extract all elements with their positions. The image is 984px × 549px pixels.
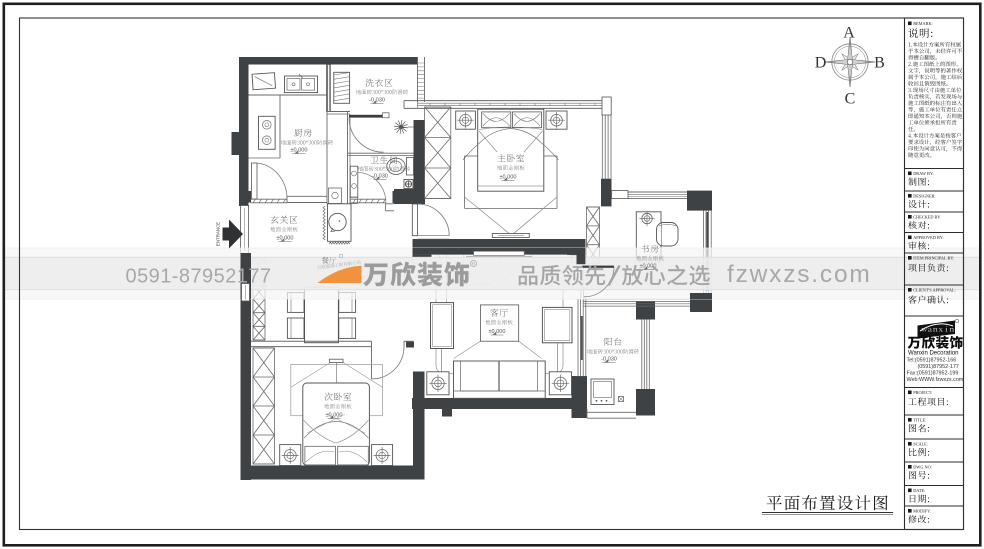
svg-text:±0.000: ±0.000 (290, 148, 307, 154)
svg-text:REMARK:: REMARK: (913, 21, 933, 26)
svg-text:ITEM PRINCIPAL BY:: ITEM PRINCIPAL BY: (913, 256, 954, 261)
svg-text:DRAW BY:: DRAW BY: (913, 171, 934, 176)
svg-text:MODIFY:: MODIFY: (913, 509, 931, 514)
svg-text:DWG NO:: DWG NO: (913, 465, 932, 470)
svg-text:(0591)87952-177: (0591)87952-177 (918, 364, 959, 370)
svg-text:DATE:: DATE: (913, 488, 925, 493)
svg-text:±0.000: ±0.000 (325, 413, 342, 419)
svg-text:PROJECT:: PROJECT: (913, 390, 932, 395)
svg-text:Fax:(0591)87952-199: Fax:(0591)87952-199 (907, 371, 959, 377)
svg-text:APPROVED BY:: APPROVED BY: (913, 235, 944, 240)
svg-text:Wanxin Decoration: Wanxin Decoration (908, 351, 958, 357)
svg-text:CLIENT'S APPROVAL:: CLIENT'S APPROVAL: (913, 288, 956, 293)
svg-text:-0.030: -0.030 (601, 357, 617, 363)
svg-text:A: A (843, 25, 855, 42)
svg-text:-0.030: -0.030 (369, 98, 385, 104)
svg-text:C: C (845, 91, 856, 108)
svg-text:ENTRANCE: ENTRANCE (216, 222, 221, 246)
svg-text:-0.030: -0.030 (372, 174, 388, 180)
svg-text:±0.000: ±0.000 (276, 236, 293, 242)
svg-text:±0.000: ±0.000 (499, 175, 516, 181)
svg-text:DESIGNER:: DESIGNER: (913, 194, 935, 199)
svg-text:SCALE:: SCALE: (913, 442, 928, 447)
svg-text:0591-87952177: 0591-87952177 (126, 266, 272, 288)
svg-text:D: D (815, 55, 827, 72)
svg-text:CHECKED BY: CHECKED BY (913, 215, 940, 220)
svg-text:B: B (874, 55, 885, 72)
svg-text:Web:WWW.fzwxzs.com: Web:WWW.fzwxzs.com (907, 377, 964, 383)
svg-text:TITLE:: TITLE: (913, 418, 926, 423)
svg-text:fzwxzs.com: fzwxzs.com (727, 261, 872, 288)
svg-text:±0.000: ±0.000 (488, 329, 505, 335)
svg-text:Tel:(0591)87952-166: Tel:(0591)87952-166 (907, 358, 957, 364)
